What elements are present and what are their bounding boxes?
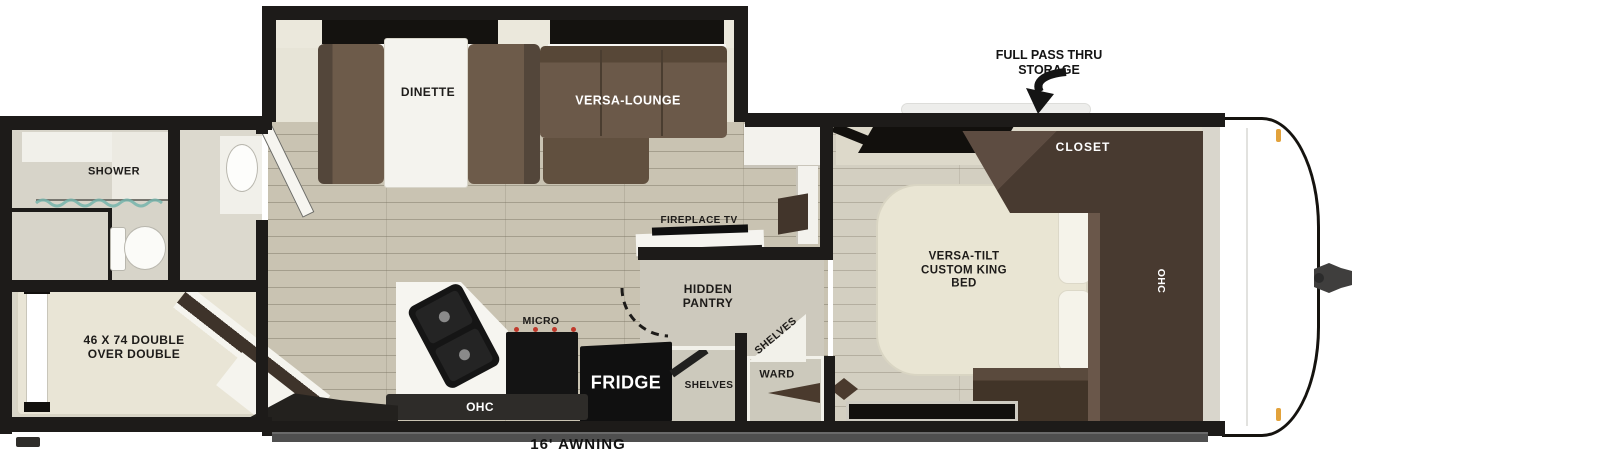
- versa-lounge-chaise: [543, 138, 649, 184]
- dinette-booth-right: [468, 44, 540, 184]
- front-cap: [1222, 117, 1320, 437]
- range-burner-knobs: [514, 327, 576, 333]
- bedroom-window-bottom: [846, 401, 1018, 422]
- bath-sink-oval: [226, 144, 258, 192]
- slide-left-wall: [262, 6, 276, 122]
- stabilizer-jack: [16, 437, 40, 447]
- label-hidden-pantry: HIDDEN PANTRY: [668, 282, 748, 310]
- clearance-marker-top: [1276, 129, 1281, 142]
- bedroom-wall-lower: [824, 356, 835, 422]
- slide-top-wall: [262, 6, 748, 20]
- bunk-window-cap-bottom: [24, 402, 50, 412]
- niche-vertical-wall: [735, 333, 747, 423]
- label-closet: CLOSET: [1056, 140, 1111, 154]
- label-niche-shelves: SHELVES: [685, 380, 734, 392]
- shower-pan-upper: [22, 132, 122, 162]
- label-dinette: DINETTE: [401, 85, 455, 99]
- pantry-wall: [638, 247, 833, 260]
- dinette-booth-left: [318, 44, 384, 184]
- bed-pillow-top: [1058, 202, 1092, 284]
- bedroom-wall-upper: [820, 116, 833, 258]
- micro-range-unit: [506, 332, 578, 396]
- rear-divider-wall-stub: [256, 122, 268, 134]
- label-micro: MICRO: [523, 315, 560, 327]
- label-bunk-bed: 46 X 74 DOUBLE OVER DOUBLE: [69, 333, 199, 361]
- toilet-bowl: [124, 226, 166, 270]
- burner-knob: [533, 327, 538, 332]
- rear-left-wall: [0, 116, 12, 434]
- label-fridge: FRIDGE: [591, 372, 661, 393]
- label-pass-thru-storage: FULL PASS THRU STORAGE: [974, 48, 1124, 78]
- awning-bar: [272, 432, 1208, 442]
- hitch-coupler: [1310, 255, 1362, 301]
- label-king-bed: VERSA-TILT CUSTOM KING BED: [917, 251, 1012, 292]
- closet-ohc-highlight: [1088, 213, 1100, 425]
- label-awning: 16' AWNING: [530, 436, 626, 453]
- label-ward: WARD: [759, 369, 794, 382]
- label-fireplace-tv: FIREPLACE TV: [660, 215, 738, 227]
- dinette-table: [384, 38, 468, 188]
- soffit-cabinet: [744, 124, 822, 168]
- label-versa-lounge: VERSA-LOUNGE: [575, 94, 681, 109]
- burner-knob: [552, 327, 557, 332]
- entertainment-panel: [778, 193, 808, 234]
- burner-knob: [571, 327, 576, 332]
- rear-divider-wall: [256, 220, 268, 422]
- bunk-window: [26, 292, 48, 406]
- label-bedroom-ohc: OHC: [1155, 269, 1167, 294]
- bed-pillow-bottom: [1058, 290, 1092, 372]
- main-top-wall: [745, 113, 1225, 127]
- burner-knob: [514, 327, 519, 332]
- floorplan-canvas: SHOWER 46 X 74 DOUBLE OVER DOUBLE DINETT…: [0, 0, 1600, 453]
- front-cap-seam: [1246, 128, 1248, 426]
- slide-right-wall: [734, 6, 748, 122]
- label-shower: SHOWER: [88, 166, 140, 179]
- bath-bunk-divider-wall: [10, 280, 262, 292]
- shower-right-wall: [168, 128, 180, 282]
- clearance-marker-bottom: [1276, 408, 1281, 421]
- label-kitchen-ohc: OHC: [466, 400, 494, 414]
- versa-lounge-sofa: [540, 46, 727, 138]
- rear-top-wall: [0, 116, 272, 130]
- front-storage-strip: [1200, 124, 1220, 424]
- shower-partition-h: [10, 208, 112, 212]
- niche-top-edge: [672, 346, 736, 350]
- rear-bottom-wall: [0, 417, 272, 432]
- slide-window-right: [550, 19, 724, 44]
